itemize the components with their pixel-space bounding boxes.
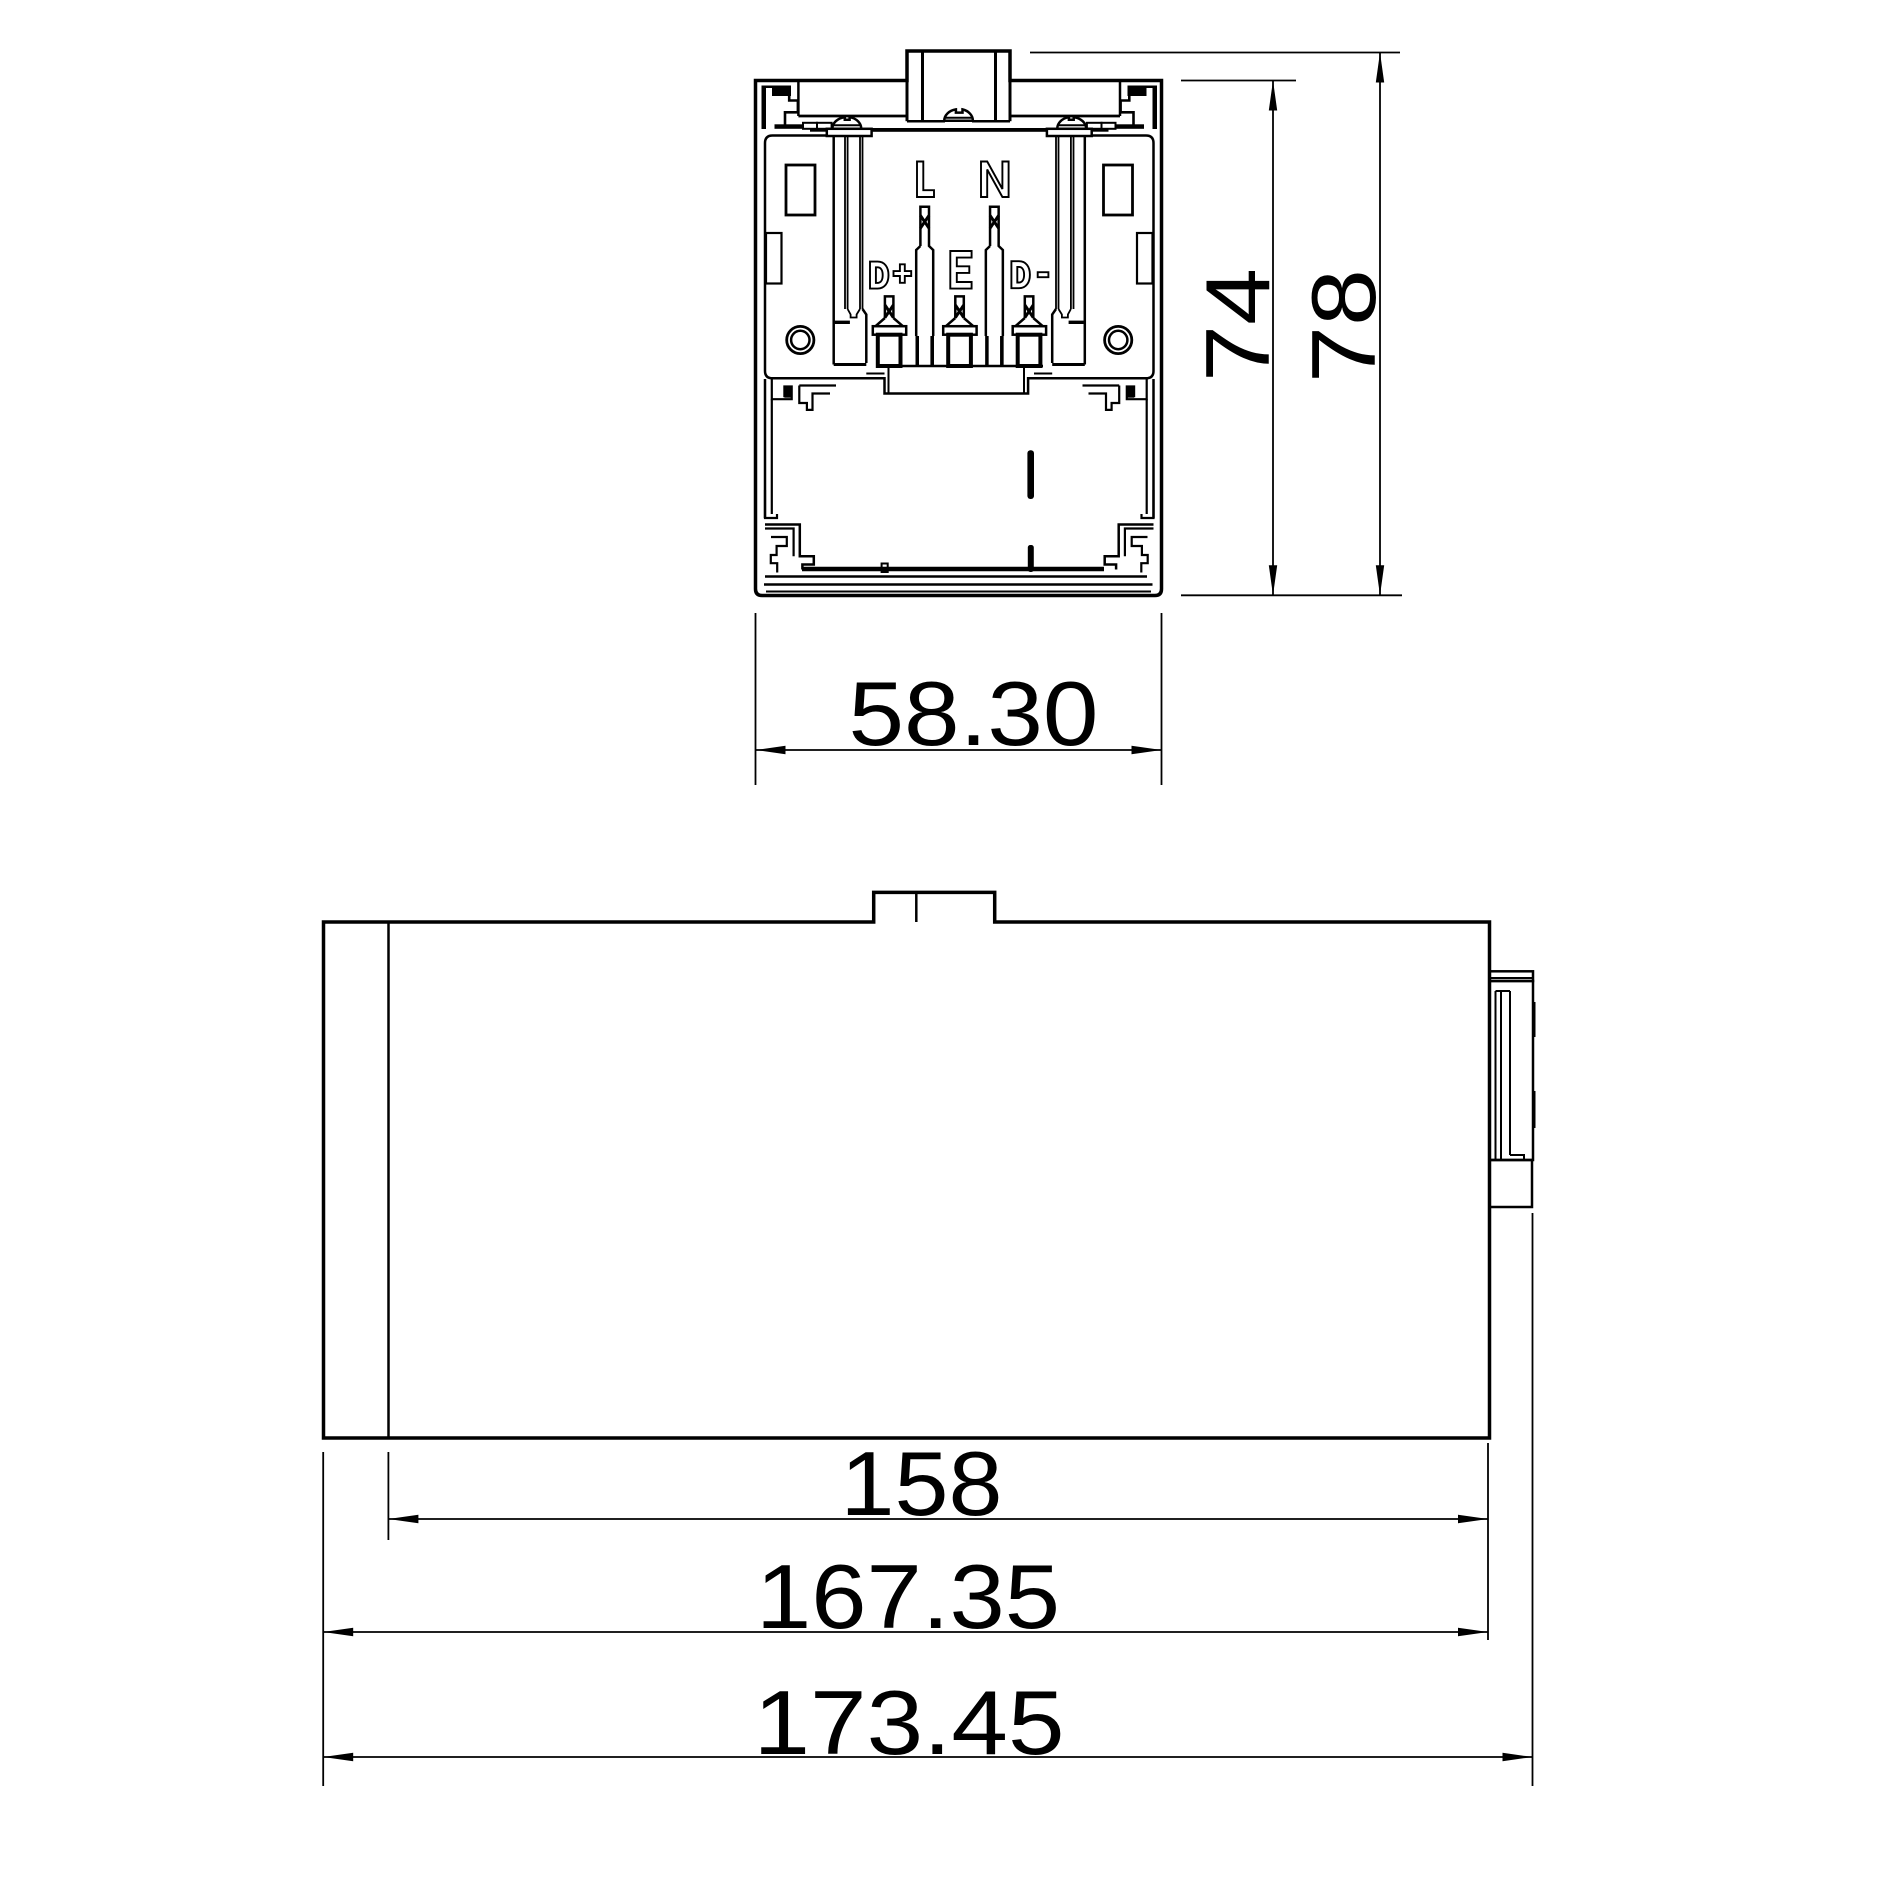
svg-text:78: 78 [1294,269,1395,383]
svg-text:58.30: 58.30 [849,664,1099,765]
svg-text:167.35: 167.35 [756,1547,1060,1648]
svg-text:173.45: 173.45 [754,1673,1065,1774]
svg-text:158: 158 [841,1434,1003,1535]
svg-text:74: 74 [1188,268,1289,382]
